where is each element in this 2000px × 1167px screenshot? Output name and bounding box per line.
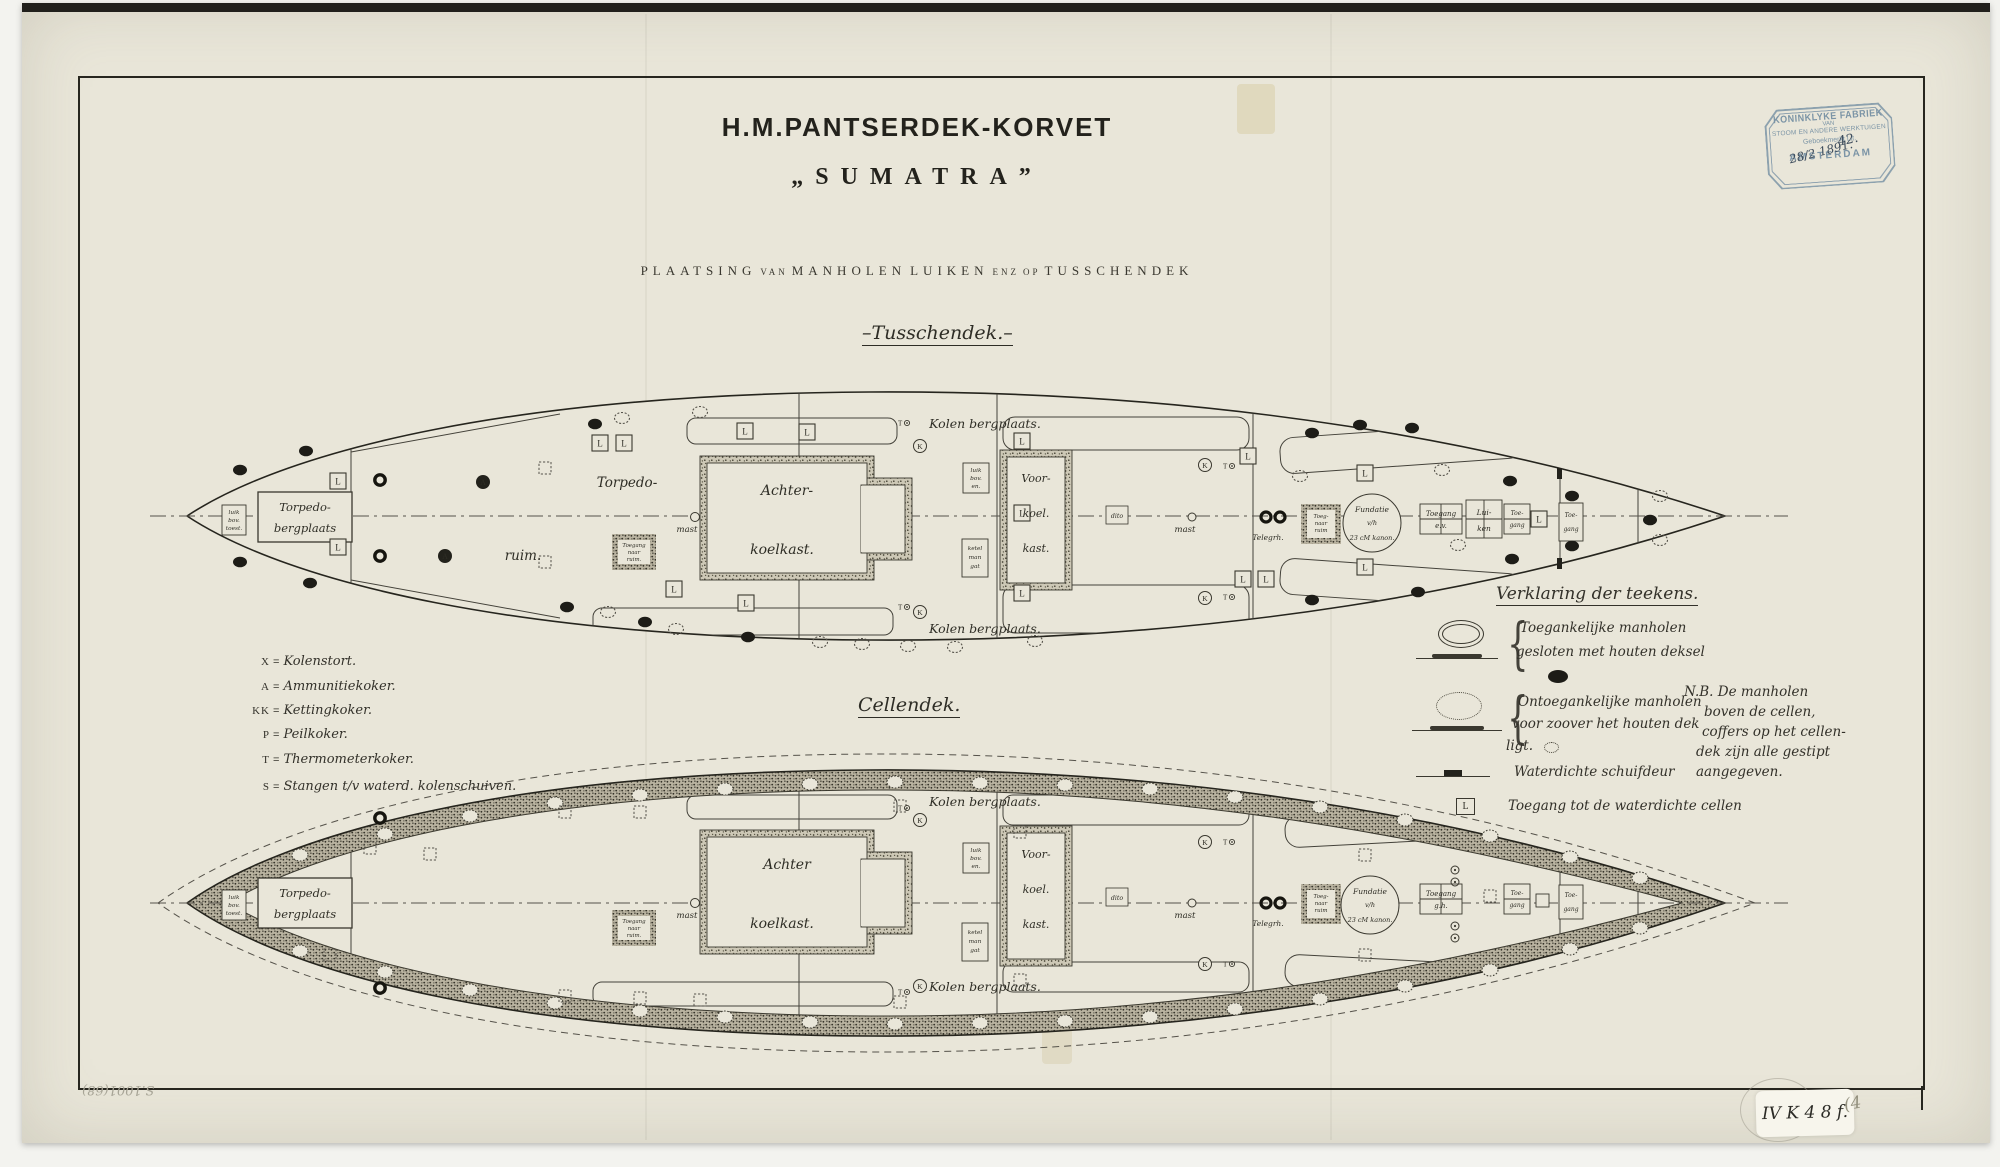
torpedo-room-label: Torpedo- bbox=[279, 886, 331, 900]
kettingkoker-icon bbox=[1199, 592, 1212, 605]
manhole-closed-icon bbox=[233, 557, 247, 568]
toegang-label: Toe- bbox=[1511, 510, 1524, 517]
svg-text:ruim: ruim bbox=[1315, 908, 1328, 914]
manhole-closed-icon bbox=[1505, 554, 1519, 565]
legend-symbol: X bbox=[240, 656, 270, 668]
dotted-manhole-icon bbox=[1544, 742, 1559, 753]
luik-box-label: luik bbox=[971, 468, 982, 474]
svg-text:ruim.: ruim. bbox=[505, 548, 542, 564]
kettingkoker-icon bbox=[914, 980, 927, 993]
inaccessible-manhole-icon bbox=[1436, 692, 1482, 720]
dito-label: dito bbox=[1111, 895, 1123, 902]
cell-access-icon bbox=[592, 435, 608, 451]
legend-text: Kolenstort. bbox=[283, 654, 356, 669]
svg-text:gang: gang bbox=[1509, 902, 1524, 909]
svg-text:gat: gat bbox=[970, 948, 980, 954]
manhole-closed-icon bbox=[1565, 491, 1579, 502]
manhole-closed-icon bbox=[1565, 541, 1579, 552]
cell-access-icon bbox=[1357, 559, 1373, 575]
legend-symbol: P bbox=[240, 729, 270, 741]
scanned-drawing-sheet: H.M.PANTSERDEK-KORVET „SUMATRA” PLAATSIN… bbox=[0, 0, 2000, 1167]
svg-text:koelkast.: koelkast. bbox=[750, 916, 814, 932]
svg-text:ruim.: ruim. bbox=[627, 557, 642, 563]
svg-text:toest.: toest. bbox=[226, 526, 243, 532]
ketel-box-label: ketel bbox=[968, 546, 983, 552]
legend-symbol: KK bbox=[240, 705, 270, 717]
svg-text:koel.: koel. bbox=[1023, 507, 1050, 520]
cell-access-icon bbox=[330, 473, 346, 489]
accessible-manhole-icon bbox=[1438, 620, 1484, 648]
mast-label: mast bbox=[1175, 525, 1196, 535]
toegang-label: Toe- bbox=[1565, 512, 1578, 519]
voor-koelkast-room bbox=[1000, 450, 1072, 590]
kettingkoker-icon bbox=[914, 606, 927, 619]
svg-text:bov.: bov. bbox=[228, 518, 240, 524]
ammunitiekoker-icon bbox=[476, 475, 490, 489]
toegang-label: Toegang bbox=[1426, 890, 1457, 898]
svg-text:man: man bbox=[969, 939, 982, 945]
svg-text:naar: naar bbox=[628, 926, 641, 932]
manhole-closed-icon bbox=[1411, 587, 1425, 598]
torpedo-hold-label: Torpedo- bbox=[597, 475, 658, 491]
mast-label: mast bbox=[677, 911, 698, 921]
telegraph-label: Telegrh. bbox=[1252, 533, 1283, 542]
svg-text:bergplaats: bergplaats bbox=[274, 907, 336, 921]
svg-text:en.: en. bbox=[971, 484, 980, 490]
svg-text:ken: ken bbox=[1477, 524, 1491, 533]
legend-symbol: S bbox=[240, 781, 270, 793]
inventory-number: IV K 4 8 f. bbox=[1762, 1102, 1849, 1124]
bulkhead-tick bbox=[1557, 558, 1562, 569]
manhole-closed-icon bbox=[303, 578, 317, 589]
svg-text:naar: naar bbox=[628, 550, 641, 556]
pencil-note: (4 bbox=[1842, 1093, 1863, 1116]
manhole-closed-icon bbox=[1503, 476, 1517, 487]
svg-text:gat: gat bbox=[970, 564, 980, 570]
gun-foundation-label: Fundatie bbox=[1354, 505, 1390, 514]
cell-access-icon bbox=[738, 595, 754, 611]
kolen-bergplaats-label: Kolen bergplaats. bbox=[928, 794, 1041, 809]
legend-text: Waterdichte schuifdeur bbox=[1514, 764, 1675, 780]
svg-text:man: man bbox=[969, 555, 982, 561]
toegang-ruim-label: Toegang bbox=[622, 543, 646, 549]
svg-text:v/h: v/h bbox=[1367, 519, 1377, 527]
dito-label: dito bbox=[1111, 513, 1123, 520]
svg-text:bov.: bov. bbox=[970, 856, 982, 862]
pencil-note-inverted: S.1001(68) bbox=[82, 1082, 154, 1097]
manhole-closed-icon bbox=[588, 419, 602, 430]
koker-ring-icon bbox=[375, 983, 385, 993]
manhole-sideview-icon bbox=[1412, 730, 1502, 731]
ammunitiekoker-icon bbox=[438, 549, 452, 563]
legend-heading: Verklaring der teekens. bbox=[1496, 584, 1698, 606]
bulkhead-tick bbox=[1557, 468, 1562, 479]
gun-foundation-label: Fundatie bbox=[1352, 887, 1388, 896]
svg-text:kast.: kast. bbox=[1023, 542, 1050, 555]
legend-text: Ammunitiekoker. bbox=[283, 679, 395, 694]
cell-access-icon: L bbox=[1456, 798, 1475, 815]
stern-box-label: luik bbox=[229, 895, 240, 901]
manhole-closed-icon bbox=[741, 632, 755, 643]
svg-text:ruim.: ruim. bbox=[627, 933, 642, 939]
cell-access-icon bbox=[1014, 585, 1030, 601]
manhole-open-icon bbox=[901, 641, 916, 652]
svg-text:koel.: koel. bbox=[1023, 883, 1050, 896]
kolen-bergplaats-label: Kolen bergplaats. bbox=[928, 416, 1041, 431]
kettingkoker-icon bbox=[1199, 836, 1212, 849]
svg-text:naar: naar bbox=[1315, 521, 1328, 527]
cell-access-icon bbox=[616, 435, 632, 451]
svg-text:toest.: toest. bbox=[226, 911, 243, 917]
legend-text: Toegang tot de waterdichte cellen bbox=[1508, 798, 1742, 814]
svg-text:g.h.: g.h. bbox=[1434, 902, 1447, 910]
cell-access-icon bbox=[737, 423, 753, 439]
mast-circle bbox=[1188, 899, 1196, 907]
toegang-label: Toegang bbox=[1426, 510, 1457, 518]
kettingkoker-icon bbox=[1199, 958, 1212, 971]
cell-access-icon bbox=[1240, 448, 1256, 464]
cell-access-icon bbox=[1014, 433, 1030, 449]
toegang-ruim-label: Toeg- bbox=[1314, 894, 1329, 900]
svg-text:gang: gang bbox=[1563, 526, 1578, 533]
stern-box-label: luik bbox=[229, 510, 240, 516]
svg-text:gang: gang bbox=[1509, 522, 1524, 529]
koker-ring-icon bbox=[375, 813, 385, 823]
svg-text:23 cM kanon.: 23 cM kanon. bbox=[1349, 534, 1395, 542]
legend-symbol: A bbox=[240, 681, 270, 693]
svg-text:bov.: bov. bbox=[970, 476, 982, 482]
sliding-door-icon bbox=[1416, 776, 1490, 777]
manhole-closed-icon bbox=[1405, 423, 1419, 434]
cell-access-icon bbox=[1258, 571, 1274, 587]
kolen-bergplaats-label: Kolen bergplaats. bbox=[928, 979, 1041, 994]
manhole-closed-icon bbox=[560, 602, 574, 613]
svg-text:bov.: bov. bbox=[228, 903, 240, 909]
manhole-closed-icon bbox=[299, 446, 313, 457]
svg-text:gang: gang bbox=[1563, 906, 1578, 913]
toegang-ruim-label: Toegang bbox=[622, 919, 646, 925]
mast-label: mast bbox=[1175, 911, 1196, 921]
cell-access-icon bbox=[1357, 465, 1373, 481]
manhole-closed-icon bbox=[638, 617, 652, 628]
legend-text: Toegankelijke manholen bbox=[1520, 620, 1686, 636]
voor-koelkast-room bbox=[1000, 826, 1072, 966]
luik-box-label: luik bbox=[971, 848, 982, 854]
manhole-open-icon bbox=[948, 642, 963, 653]
kettingkoker-icon bbox=[914, 814, 927, 827]
cell-access-icon bbox=[330, 539, 346, 555]
svg-text:kast.: kast. bbox=[1023, 918, 1050, 931]
cell-access-icon bbox=[799, 424, 815, 440]
cell-access-icon bbox=[1235, 571, 1251, 587]
voor-koelkast-label: Voor- bbox=[1021, 848, 1050, 861]
achter-koelkast-label: Achter bbox=[761, 857, 812, 873]
manhole-closed-icon bbox=[233, 465, 247, 476]
inventory-sticker: IV K 4 8 f. bbox=[1755, 1089, 1854, 1138]
svg-text:ruim: ruim bbox=[1315, 528, 1328, 534]
toegang-ruim-label: Toeg- bbox=[1314, 514, 1329, 520]
manhole-closed-icon bbox=[1305, 595, 1319, 606]
legend-symbol: T bbox=[240, 754, 270, 766]
legend-text: Thermometerkoker. bbox=[283, 752, 413, 767]
deck-plans-drawing: L K A T bbox=[0, 0, 2000, 1167]
legend-text: Ontoegankelijke manholen bbox=[1518, 694, 1702, 710]
manhole-closed-icon bbox=[1353, 420, 1367, 431]
toegang-label: Toe- bbox=[1565, 892, 1578, 899]
kolen-bergplaats-label: Kolen bergplaats. bbox=[928, 621, 1041, 636]
kettingkoker-icon bbox=[914, 440, 927, 453]
manhole-sideview-icon bbox=[1416, 658, 1498, 659]
mast-circle bbox=[1188, 513, 1196, 521]
svg-text:en.: en. bbox=[971, 864, 980, 870]
manhole-closed-icon bbox=[1305, 428, 1319, 439]
kettingkoker-icon bbox=[1199, 459, 1212, 472]
svg-text:bergplaats: bergplaats bbox=[274, 521, 336, 535]
ship-plan-tusschendek: luik bov. toest. Torpedo- bergplaats Tor… bbox=[150, 385, 1788, 653]
svg-text:naar: naar bbox=[1315, 901, 1328, 907]
closed-manhole-icon bbox=[1548, 670, 1568, 683]
legend-text: Peilkoker. bbox=[283, 727, 347, 742]
svg-text:koelkast.: koelkast. bbox=[750, 542, 814, 558]
toegang-label: Toe- bbox=[1511, 890, 1524, 897]
luiken-label: Lui- bbox=[1476, 508, 1492, 517]
cell-access-icon bbox=[666, 581, 682, 597]
cell-access-icon bbox=[1531, 511, 1547, 527]
ketel-box-label: ketel bbox=[968, 930, 983, 936]
telegraph-label: Telegrh. bbox=[1252, 919, 1283, 928]
torpedo-room-label: Torpedo- bbox=[279, 500, 331, 514]
mast-label: mast bbox=[677, 525, 698, 535]
mast-circle bbox=[691, 513, 700, 522]
legend-text: Kettingkoker. bbox=[283, 703, 372, 718]
nb-note: N.B. De manholen bbox=[1684, 684, 1808, 700]
voor-koelkast-label: Voor- bbox=[1021, 472, 1050, 485]
manhole-closed-icon bbox=[1643, 515, 1657, 526]
svg-text:e.v.: e.v. bbox=[1435, 522, 1447, 530]
svg-text:v/h: v/h bbox=[1365, 901, 1375, 909]
mast-circle bbox=[691, 899, 700, 908]
legend-text: Stangen t/v waterd. kolenschuiven. bbox=[283, 779, 516, 794]
achter-koelkast-label: Achter- bbox=[759, 483, 814, 499]
svg-text:23 cM kanon.: 23 cM kanon. bbox=[1347, 916, 1393, 924]
